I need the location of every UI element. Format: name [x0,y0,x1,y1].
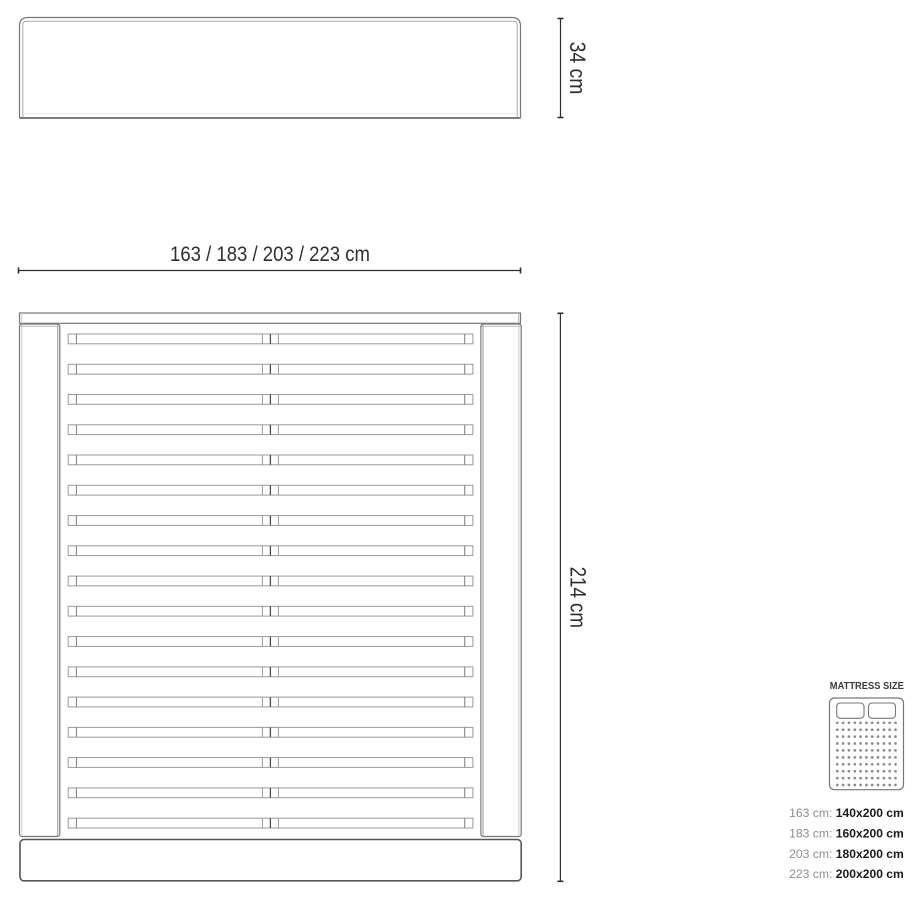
svg-text:163 cm:: 163 cm: [789,806,832,820]
svg-text:180x200 cm: 180x200 cm [836,847,904,861]
svg-text:163 / 183 / 203 / 223 cm: 163 / 183 / 203 / 223 cm [170,242,370,266]
svg-text:223 cm:: 223 cm: [789,867,832,881]
svg-text:214 cm: 214 cm [565,567,590,628]
svg-text:183 cm:: 183 cm: [789,826,832,840]
svg-text:140x200 cm: 140x200 cm [836,806,904,820]
svg-text:160x200 cm: 160x200 cm [836,826,904,840]
svg-text:200x200 cm: 200x200 cm [836,867,904,881]
svg-text:MATTRESS SIZE: MATTRESS SIZE [830,680,904,692]
svg-text:34 cm: 34 cm [565,42,590,95]
svg-text:203 cm:: 203 cm: [789,847,832,861]
